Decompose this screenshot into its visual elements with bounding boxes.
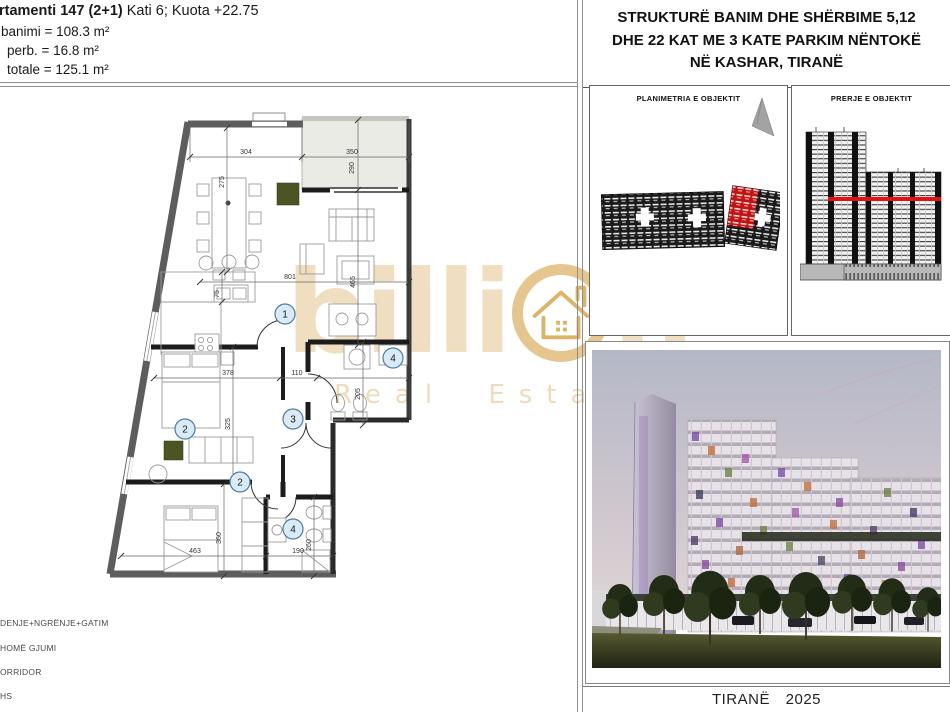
north-arrow-icon	[748, 96, 784, 140]
footer-caption-box: TIRANË 2025	[583, 686, 950, 713]
dim-bath-b-width: 190	[292, 548, 304, 555]
dim-bedroom-b-width: 463	[189, 548, 201, 555]
dim-bedroom-b-depth: 360	[216, 532, 223, 544]
site-building-highlighted	[725, 186, 780, 251]
legend-item-corridor: ORRIDOR	[0, 667, 42, 677]
project-title: STRUKTURË BANIM DHE SHËRBIME 5,12 DHE 22…	[583, 0, 950, 88]
render-panel	[585, 341, 950, 684]
building-render-photo	[592, 350, 941, 668]
project-title-line1: STRUKTURË BANIM DHE SHËRBIME 5,12	[583, 7, 950, 30]
green-column-2	[164, 441, 183, 460]
room-badge-bedroom-a: 2	[175, 419, 195, 439]
building-section-drawing	[800, 126, 943, 301]
site-building-long	[601, 191, 724, 249]
room-badge-bath-a: 4	[383, 348, 403, 368]
svg-text:4: 4	[390, 354, 396, 365]
svg-text:4: 4	[290, 525, 296, 536]
green-column-1	[277, 183, 299, 205]
site-plan-drawing	[596, 181, 780, 331]
room-badge-bath-b: 4	[283, 519, 303, 539]
dim-hall-width: 110	[291, 370, 302, 377]
dim-counter-depth: 75	[214, 290, 221, 298]
dim-bath-a-depth: 205	[355, 388, 362, 400]
dim-table-len: 275	[219, 176, 226, 188]
dim-bath-b-depth: 260	[306, 539, 313, 551]
project-title-line2: DHE 22 KAT ME 3 KATE PARKIM NËNTOKË	[583, 30, 950, 53]
dim-living-depth: 465	[350, 276, 357, 288]
svg-text:2: 2	[182, 425, 188, 436]
section-base	[800, 264, 941, 280]
room-badge-corridor: 3	[283, 409, 303, 429]
bathroom-b-fixtures	[268, 506, 331, 572]
floor-plan: 304 350 290 275 801 75 465 378 110 205 3…	[0, 0, 578, 620]
footer-caption: TIRANË 2025	[583, 687, 950, 712]
apartment-location-highlight	[727, 186, 758, 229]
lawn	[592, 633, 941, 668]
svg-text:2: 2	[237, 478, 243, 489]
svg-text:3: 3	[290, 415, 296, 426]
svg-text:1: 1	[282, 310, 288, 321]
dim-bedroom-a-width: 378	[222, 370, 234, 377]
dim-dining-width: 304	[240, 149, 252, 156]
panel-prerje: PRERJE E OBJEKTIT	[791, 85, 950, 336]
dining-table	[197, 178, 261, 280]
room-badge-bedroom-b: 2	[230, 472, 250, 492]
legend-item-bath: HS	[0, 691, 12, 701]
dim-bedroom-a-depth: 325	[225, 418, 232, 430]
legend-item-bedroom: HOMË GJUMI	[0, 643, 56, 653]
dim-living-width: 801	[284, 274, 296, 281]
roof-garden-band	[742, 532, 941, 541]
section-floor-cut-line	[828, 197, 941, 201]
room-badge-living: 1	[275, 304, 295, 324]
balcony-door-wall	[302, 188, 409, 192]
dim-balcony-depth: 290	[349, 162, 356, 174]
living-furniture	[300, 209, 376, 336]
section-low-block	[866, 172, 941, 264]
dim-balcony-width: 350	[346, 149, 358, 156]
panel-prerje-title: PRERJE E OBJEKTIT	[792, 94, 950, 103]
project-title-line3: NË KASHAR, TIRANË	[583, 52, 950, 75]
